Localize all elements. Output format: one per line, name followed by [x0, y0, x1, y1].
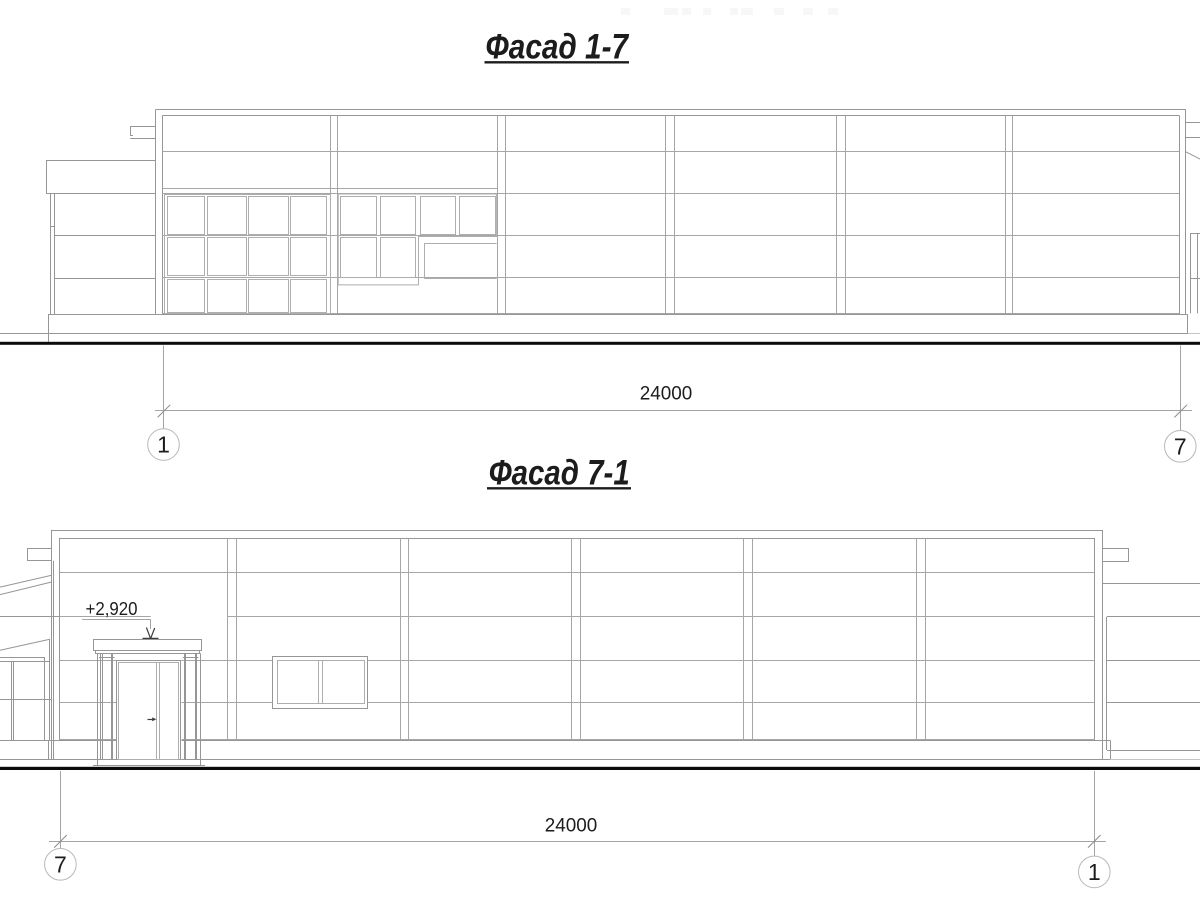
svg-text:Фасад 7-1: Фасад 7-1: [489, 454, 630, 493]
svg-text:7: 7: [54, 851, 67, 877]
svg-text:24000: 24000: [640, 383, 693, 405]
svg-text:Фасад 1-7: Фасад 1-7: [486, 28, 630, 67]
svg-text:1: 1: [1088, 859, 1101, 885]
svg-text:1: 1: [157, 432, 170, 458]
svg-text:+2,920: +2,920: [86, 598, 138, 619]
svg-text:7: 7: [1174, 433, 1187, 459]
svg-text:24000: 24000: [545, 814, 598, 836]
